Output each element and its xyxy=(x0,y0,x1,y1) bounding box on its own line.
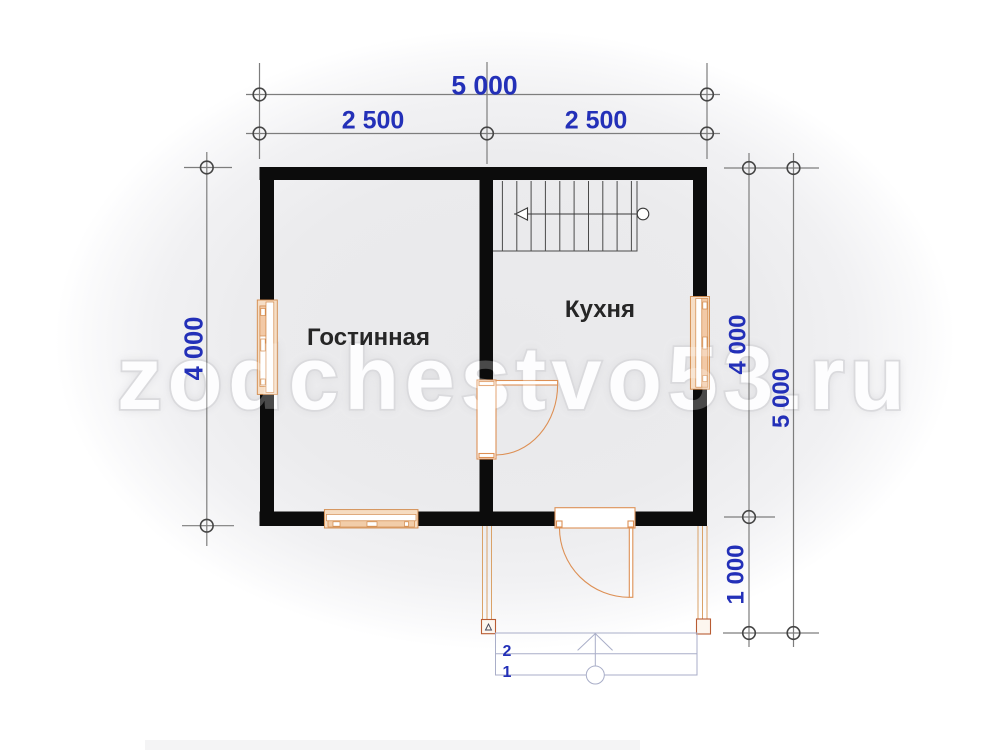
svg-text:2 500: 2 500 xyxy=(342,107,405,135)
svg-text:1: 1 xyxy=(503,664,512,681)
svg-text:2: 2 xyxy=(503,643,512,660)
svg-text:2 500: 2 500 xyxy=(565,107,628,135)
svg-text:4 000: 4 000 xyxy=(725,314,752,374)
svg-text:1 000: 1 000 xyxy=(723,544,750,604)
svg-text:Кухня: Кухня xyxy=(565,296,635,323)
svg-text:4 000: 4 000 xyxy=(181,317,209,381)
svg-text:5 000: 5 000 xyxy=(451,71,517,101)
svg-text:5 000: 5 000 xyxy=(768,368,795,428)
svg-text:Гостинная: Гостинная xyxy=(307,324,430,351)
